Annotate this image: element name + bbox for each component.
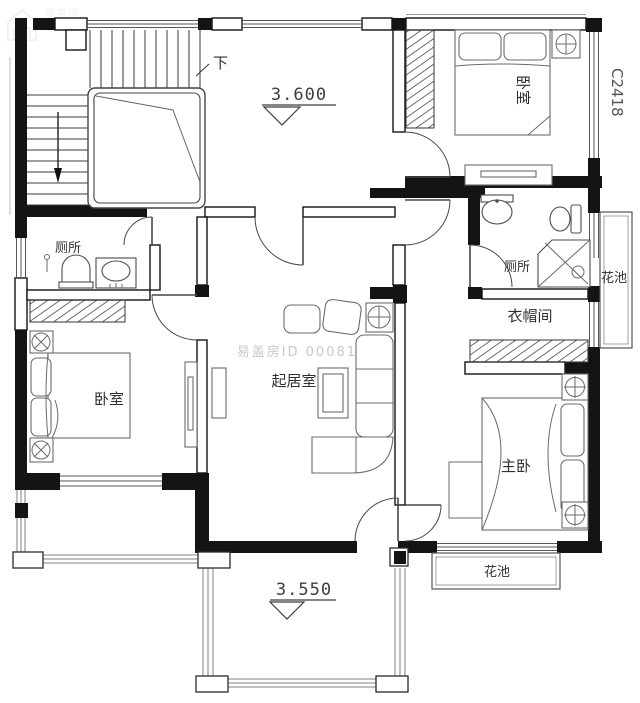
stair-direction-arrow [54, 168, 62, 183]
top-bedroom-door-arc [405, 132, 450, 177]
hall-living-door-arc [255, 217, 303, 265]
flower-bed-bottom-label: 花池 [484, 564, 510, 580]
shower-right [538, 240, 590, 287]
window-code-label: C2418 [608, 68, 626, 117]
bed-top-right [455, 30, 550, 135]
vestibule-door-arc [405, 200, 450, 245]
bedroom-top-right-label: 卧室 [514, 75, 532, 105]
toilet-left-fixture [59, 255, 93, 288]
floor-plan-page: 易盖房 易盖房 易盖房ID 000817 [0, 0, 640, 703]
floor-plan-drawing: 易盖房 易盖房 易盖房ID 000817 [0, 0, 640, 703]
column-symbol-bottom [562, 502, 588, 528]
left-toilet-door-arc [124, 217, 152, 245]
living-room-label: 起居室 [271, 372, 316, 390]
toilet-right-label: 厕所 [504, 260, 530, 275]
toilet-right [550, 205, 581, 233]
tv-cabinet-living [212, 368, 226, 418]
dresser-left-bedroom [185, 362, 197, 447]
elevation-lower-value: 3.550 [276, 580, 332, 600]
terrace-railings [13, 490, 408, 692]
floor-drain-left [45, 255, 50, 273]
sink-left [96, 258, 136, 288]
wardrobe-left-bedroom [30, 300, 125, 322]
elevation-upper-value: 3.600 [271, 85, 327, 105]
down-label-leader [196, 64, 209, 76]
elevation-lower-triangle [270, 602, 304, 619]
left-bedroom-door-arc [152, 295, 197, 340]
center-watermark: 易盖房ID 000817 [237, 344, 368, 360]
terrace-door-arc [355, 498, 398, 541]
elevation-lower: 3.550 [270, 580, 336, 619]
master-bedroom-door-arc [405, 505, 441, 541]
cloakroom-label: 衣帽间 [507, 307, 552, 325]
master-bedroom-label: 主卧 [501, 457, 531, 475]
bedroom-left-label: 卧室 [94, 390, 124, 408]
coffee-table [318, 368, 348, 418]
elevation-upper: 3.600 [262, 85, 336, 125]
dresser-top-right [465, 165, 552, 185]
wardrobe-top-right [406, 30, 434, 128]
column-symbol-top [562, 374, 588, 400]
sink-right [481, 195, 513, 224]
toilet-left-label: 厕所 [55, 241, 81, 256]
stool-left-bottom [30, 438, 53, 462]
stool-left-top [30, 331, 53, 353]
staircase [27, 30, 209, 208]
nightstand-top-right [552, 30, 580, 58]
elevation-upper-triangle [264, 107, 300, 125]
stairs-down-label: 下 [213, 54, 228, 72]
flower-bed-right-label: 花池 [601, 270, 627, 286]
wardrobe-cloakroom [470, 340, 588, 362]
